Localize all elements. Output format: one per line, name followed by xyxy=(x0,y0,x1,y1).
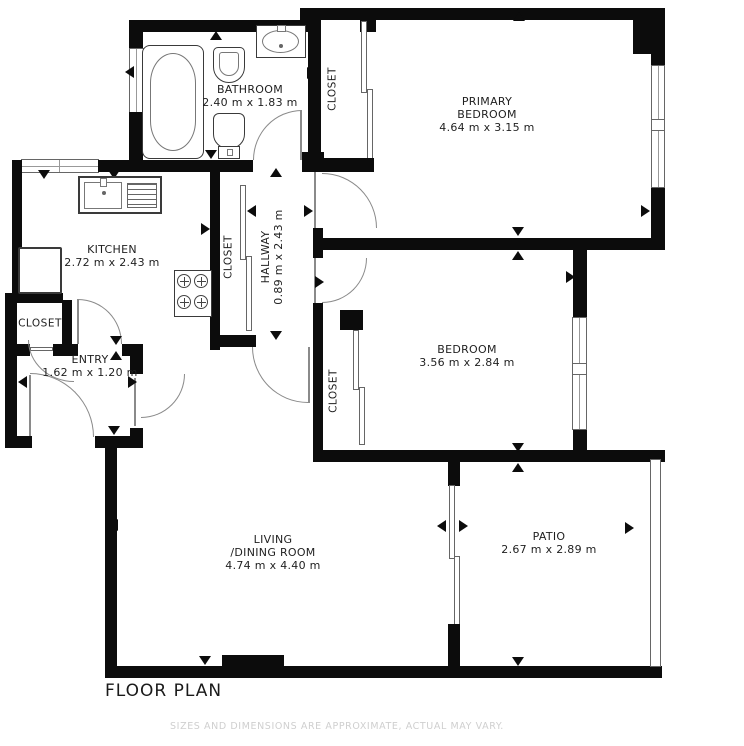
room-name: PRIMARY xyxy=(439,95,534,108)
opening-marker xyxy=(210,31,222,40)
bathtub-basin-icon xyxy=(150,53,196,151)
opening-marker xyxy=(270,331,282,340)
door-arc xyxy=(141,374,185,418)
opening-marker xyxy=(512,463,524,472)
opening-marker xyxy=(201,223,210,235)
room-dims: 0.89 m x 2.43 m xyxy=(272,209,285,304)
room-label-bathroom: BATHROOM 2.40 m x 1.83 m xyxy=(202,83,297,109)
opening-marker xyxy=(512,443,524,452)
opening-marker xyxy=(110,336,122,345)
wall xyxy=(105,440,117,678)
room-name: ENTRY xyxy=(42,353,137,366)
window xyxy=(21,159,99,173)
room-dims: 2.67 m x 2.89 m xyxy=(501,543,596,556)
opening-marker xyxy=(512,251,524,260)
room-dims: 4.74 m x 4.40 m xyxy=(225,560,320,573)
room-name: BEDROOM xyxy=(439,108,534,121)
wall xyxy=(313,450,665,462)
wall xyxy=(210,172,220,350)
wall xyxy=(5,293,17,448)
sink-basin-icon xyxy=(262,30,299,53)
opening-marker xyxy=(199,656,211,665)
closet-label-hall: CLOSET xyxy=(223,235,236,279)
sliding-door xyxy=(361,21,367,93)
room-dims: 4.64 m x 3.15 m xyxy=(439,122,534,135)
room-name: KITCHEN xyxy=(64,243,159,256)
opening-marker xyxy=(304,205,313,217)
opening-marker xyxy=(38,170,50,179)
burner-icon xyxy=(177,274,191,288)
opening-marker xyxy=(437,520,446,532)
drain-icon xyxy=(279,44,283,48)
room-label-entry: ENTRY 1.62 m x 1.20 m xyxy=(42,353,137,379)
wall xyxy=(300,8,665,20)
floor-plan: BATHROOM 2.40 m x 1.83 m CLOSET PRIMARY … xyxy=(0,0,744,746)
wall xyxy=(313,303,323,450)
sliding-door xyxy=(449,485,455,559)
kitchen-faucet-icon xyxy=(100,178,107,187)
wall xyxy=(308,20,321,160)
room-label-living-dining: LIVING /DINING ROOM 4.74 m x 4.40 m xyxy=(225,533,320,573)
room-name: LIVING xyxy=(225,533,320,546)
door-leaf xyxy=(314,172,316,228)
wall xyxy=(573,250,587,317)
room-name: /DINING ROOM xyxy=(225,546,320,559)
bidet-bowl-icon xyxy=(219,52,239,76)
room-name: BATHROOM xyxy=(202,83,297,96)
wall xyxy=(210,335,256,347)
opening-marker xyxy=(205,150,217,159)
window-divider xyxy=(651,119,665,131)
room-name: BEDROOM xyxy=(419,343,514,356)
room-dims: 2.72 m x 2.43 m xyxy=(64,256,159,269)
kitchen-drain-icon xyxy=(102,191,106,195)
opening-marker xyxy=(512,657,524,666)
wall xyxy=(302,152,324,172)
door-arc xyxy=(322,173,377,228)
door-arc xyxy=(252,347,308,403)
page-title: FLOOR PLAN xyxy=(105,681,222,701)
toilet-flush-icon xyxy=(227,149,233,156)
wall xyxy=(324,158,374,172)
room-label-bedroom: BEDROOM 3.56 m x 2.84 m xyxy=(419,343,514,369)
door-arc xyxy=(30,373,94,437)
opening-marker xyxy=(13,223,22,235)
closet-label-entry: CLOSET xyxy=(18,318,62,331)
closet-label-primary: CLOSET xyxy=(327,67,340,111)
wall xyxy=(129,112,143,160)
wall xyxy=(129,20,143,50)
wall xyxy=(448,450,460,486)
drainboard-icon xyxy=(127,183,157,208)
wall xyxy=(105,666,662,678)
room-label-hallway: HALLWAY 0.89 m x 2.43 m xyxy=(259,209,285,304)
sliding-door xyxy=(246,256,252,331)
opening-marker xyxy=(315,276,324,288)
wall xyxy=(95,436,143,448)
opening-marker xyxy=(459,520,468,532)
window-divider xyxy=(572,363,587,375)
wall xyxy=(12,436,32,448)
wall xyxy=(340,310,363,330)
burner-icon xyxy=(194,295,208,309)
opening-marker xyxy=(18,376,27,388)
door-arc xyxy=(322,258,367,303)
sliding-door xyxy=(454,556,460,627)
opening-marker xyxy=(513,12,525,21)
room-name: HALLWAY xyxy=(259,209,272,304)
opening-marker xyxy=(108,426,120,435)
opening-marker xyxy=(307,67,316,79)
wall xyxy=(222,655,284,668)
opening-marker xyxy=(641,205,650,217)
room-label-patio: PATIO 2.67 m x 2.89 m xyxy=(501,530,596,556)
wall xyxy=(98,160,253,172)
room-dims: 3.56 m x 2.84 m xyxy=(419,356,514,369)
opening-marker xyxy=(247,205,256,217)
disclaimer-text: SIZES AND DIMENSIONS ARE APPROXIMATE, AC… xyxy=(170,721,504,732)
opening-marker xyxy=(566,271,575,283)
door-leaf xyxy=(308,347,310,403)
room-dims: 2.40 m x 1.83 m xyxy=(202,96,297,109)
wall xyxy=(651,8,665,65)
room-label-kitchen: KITCHEN 2.72 m x 2.43 m xyxy=(64,243,159,269)
patio-railing xyxy=(650,459,661,667)
door-arc xyxy=(253,110,302,160)
sliding-door xyxy=(359,387,365,445)
sliding-door xyxy=(240,185,246,260)
room-label-primary-bedroom: PRIMARY BEDROOM 4.64 m x 3.15 m xyxy=(439,95,534,135)
opening-marker xyxy=(512,227,524,236)
burner-icon xyxy=(177,295,191,309)
toilet-icon xyxy=(213,113,245,149)
room-dims: 1.62 m x 1.20 m xyxy=(42,366,137,379)
opening-marker xyxy=(625,522,634,534)
opening-marker xyxy=(109,519,118,531)
burner-icon xyxy=(194,274,208,288)
closet-label-bedroom: CLOSET xyxy=(328,369,341,413)
sliding-door xyxy=(367,89,373,159)
refrigerator-icon xyxy=(18,247,62,294)
sliding-door xyxy=(353,330,359,390)
wall xyxy=(313,238,665,250)
room-name: PATIO xyxy=(501,530,596,543)
opening-marker xyxy=(125,66,134,78)
faucet-icon xyxy=(277,25,286,32)
opening-marker xyxy=(270,168,282,177)
wall xyxy=(448,624,460,667)
wall xyxy=(313,228,323,258)
